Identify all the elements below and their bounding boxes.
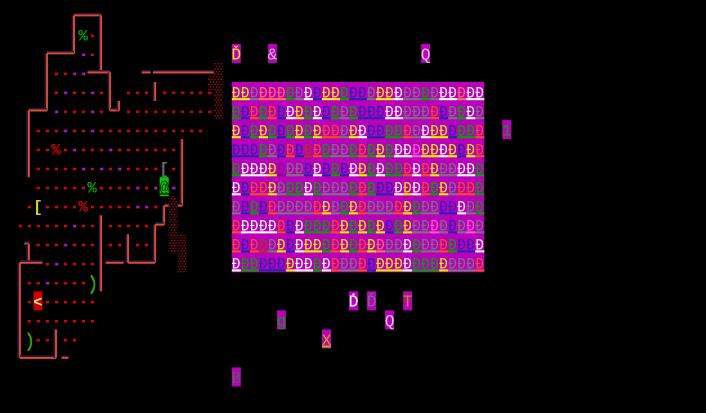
svg-text:Đ: Đ bbox=[376, 123, 385, 141]
svg-text:Đ: Đ bbox=[349, 84, 358, 102]
svg-text:Đ: Đ bbox=[466, 180, 475, 198]
svg-text:Đ: Đ bbox=[250, 103, 259, 121]
svg-text:Đ: Đ bbox=[277, 103, 286, 121]
svg-text:Đ: Đ bbox=[277, 199, 286, 217]
svg-text:Đ: Đ bbox=[466, 103, 475, 121]
svg-text:Đ: Đ bbox=[358, 256, 367, 274]
svg-text:Đ: Đ bbox=[304, 103, 313, 121]
svg-text:Đ: Đ bbox=[430, 237, 439, 255]
svg-text:Đ: Đ bbox=[412, 84, 421, 102]
svg-text:Đ: Đ bbox=[475, 256, 484, 274]
svg-text:Đ: Đ bbox=[439, 180, 448, 198]
svg-text:Đ: Đ bbox=[340, 237, 349, 255]
svg-text:T: T bbox=[403, 293, 413, 312]
svg-text:Đ: Đ bbox=[457, 103, 466, 121]
svg-text:Đ: Đ bbox=[475, 103, 484, 121]
svg-text:Đ: Đ bbox=[466, 199, 475, 217]
svg-text:Đ: Đ bbox=[232, 199, 241, 217]
svg-text:Đ: Đ bbox=[385, 103, 394, 121]
svg-text:Đ: Đ bbox=[358, 161, 367, 179]
svg-text:Đ: Đ bbox=[250, 218, 259, 236]
svg-text:Đ: Đ bbox=[475, 199, 484, 217]
svg-text:Đ: Đ bbox=[349, 103, 358, 121]
svg-text:Đ: Đ bbox=[340, 256, 349, 274]
svg-text:Đ: Đ bbox=[421, 237, 430, 255]
svg-text:Đ: Đ bbox=[259, 180, 268, 198]
svg-text:Đ: Đ bbox=[331, 161, 340, 179]
svg-text:Đ: Đ bbox=[403, 237, 412, 255]
svg-text:Đ: Đ bbox=[376, 161, 385, 179]
svg-text:Đ: Đ bbox=[295, 103, 304, 121]
svg-text:Đ: Đ bbox=[241, 123, 250, 141]
svg-text:Đ: Đ bbox=[340, 123, 349, 141]
svg-text:Đ: Đ bbox=[295, 237, 304, 255]
svg-text:Đ: Đ bbox=[421, 103, 430, 121]
svg-text:Đ: Đ bbox=[457, 123, 466, 141]
svg-text:Đ: Đ bbox=[268, 180, 277, 198]
svg-text:Đ: Đ bbox=[250, 237, 259, 255]
svg-text:Đ: Đ bbox=[313, 103, 322, 121]
svg-text:Đ: Đ bbox=[322, 84, 331, 102]
svg-text:Đ: Đ bbox=[304, 123, 313, 141]
svg-text:Đ: Đ bbox=[430, 180, 439, 198]
svg-text:): ) bbox=[87, 275, 98, 296]
svg-text:Đ: Đ bbox=[430, 199, 439, 217]
svg-text:Đ: Đ bbox=[232, 103, 241, 121]
svg-text:Đ: Đ bbox=[421, 218, 430, 236]
svg-text:Đ: Đ bbox=[457, 180, 466, 198]
svg-text:Đ: Đ bbox=[448, 218, 457, 236]
svg-text:Đ: Đ bbox=[394, 161, 403, 179]
svg-text:Đ: Đ bbox=[385, 218, 394, 236]
svg-text:Đ: Đ bbox=[358, 142, 367, 160]
svg-text:Đ: Đ bbox=[331, 84, 340, 102]
svg-text:Đ: Đ bbox=[394, 218, 403, 236]
svg-text:Đ: Đ bbox=[304, 161, 313, 179]
svg-text:Đ: Đ bbox=[385, 180, 394, 198]
svg-text:Đ: Đ bbox=[394, 180, 403, 198]
svg-text:Đ: Đ bbox=[250, 180, 259, 198]
svg-text:Đ: Đ bbox=[376, 142, 385, 160]
svg-text:Đ: Đ bbox=[367, 161, 376, 179]
svg-text:Đ: Đ bbox=[475, 84, 484, 102]
svg-text:g: g bbox=[276, 312, 286, 331]
svg-text:Đ: Đ bbox=[268, 103, 277, 121]
svg-text:Đ: Đ bbox=[394, 256, 403, 274]
svg-text:Đ: Đ bbox=[322, 180, 331, 198]
svg-text:B: B bbox=[231, 369, 241, 388]
svg-text:Đ: Đ bbox=[412, 103, 421, 121]
svg-text:Đ: Đ bbox=[304, 256, 313, 274]
svg-text:Đ: Đ bbox=[286, 142, 295, 160]
svg-text:Đ: Đ bbox=[241, 142, 250, 160]
svg-text:Đ: Đ bbox=[331, 180, 340, 198]
svg-text:Đ: Đ bbox=[448, 161, 457, 179]
svg-text:Đ: Đ bbox=[241, 103, 250, 121]
svg-text:Đ: Đ bbox=[322, 123, 331, 141]
svg-text:Đ: Đ bbox=[286, 123, 295, 141]
svg-text:Đ: Đ bbox=[331, 256, 340, 274]
svg-text:Đ: Đ bbox=[403, 103, 412, 121]
svg-text:Đ: Đ bbox=[475, 180, 484, 198]
svg-text:Đ: Đ bbox=[241, 84, 250, 102]
svg-text:@: @ bbox=[160, 179, 169, 197]
svg-text:Đ: Đ bbox=[268, 218, 277, 236]
svg-text:Đ: Đ bbox=[250, 256, 259, 274]
svg-text:Đ: Đ bbox=[232, 180, 241, 198]
svg-text:Đ: Đ bbox=[412, 199, 421, 217]
svg-text:Đ: Đ bbox=[277, 256, 286, 274]
svg-text:Đ: Đ bbox=[385, 237, 394, 255]
svg-text:Đ: Đ bbox=[241, 218, 250, 236]
svg-text:[: [ bbox=[33, 199, 43, 217]
svg-text:Đ: Đ bbox=[241, 180, 250, 198]
svg-text:Đ: Đ bbox=[295, 84, 304, 102]
svg-text:Đ: Đ bbox=[331, 103, 340, 121]
svg-text:Đ: Đ bbox=[322, 103, 331, 121]
svg-text:Đ: Đ bbox=[268, 123, 277, 141]
svg-text:Đ: Đ bbox=[322, 256, 331, 274]
svg-text:Đ: Đ bbox=[430, 123, 439, 141]
svg-text:Đ: Đ bbox=[322, 237, 331, 255]
svg-text:Đ: Đ bbox=[385, 161, 394, 179]
svg-text:Đ: Đ bbox=[349, 218, 358, 236]
svg-text:Đ: Đ bbox=[331, 218, 340, 236]
svg-text:Đ: Đ bbox=[394, 237, 403, 255]
svg-text:Đ: Đ bbox=[268, 256, 277, 274]
svg-text:Đ: Đ bbox=[322, 142, 331, 160]
svg-text:Đ: Đ bbox=[349, 142, 358, 160]
svg-text:Đ: Đ bbox=[313, 237, 322, 255]
svg-text:Đ: Đ bbox=[376, 237, 385, 255]
svg-text:Đ: Đ bbox=[457, 142, 466, 160]
svg-text:Đ: Đ bbox=[259, 142, 268, 160]
svg-text:Đ: Đ bbox=[439, 142, 448, 160]
svg-text:Đ: Đ bbox=[466, 237, 475, 255]
svg-text:Đ: Đ bbox=[259, 123, 268, 141]
svg-text:Đ: Đ bbox=[259, 218, 268, 236]
svg-text:Đ: Đ bbox=[232, 218, 241, 236]
svg-text:Đ: Đ bbox=[475, 123, 484, 141]
svg-text:Đ: Đ bbox=[367, 199, 376, 217]
svg-text:Đ: Đ bbox=[304, 199, 313, 217]
svg-text:Đ: Đ bbox=[313, 256, 322, 274]
svg-text:Đ: Đ bbox=[331, 199, 340, 217]
svg-text:D: D bbox=[349, 293, 359, 312]
svg-text:Đ: Đ bbox=[466, 256, 475, 274]
svg-text:Đ: Đ bbox=[403, 256, 412, 274]
svg-text:Đ: Đ bbox=[412, 218, 421, 236]
svg-text:Đ: Đ bbox=[439, 161, 448, 179]
svg-text:Đ: Đ bbox=[439, 218, 448, 236]
svg-text:Đ: Đ bbox=[412, 142, 421, 160]
svg-text:Đ: Đ bbox=[466, 84, 475, 102]
svg-text:Đ: Đ bbox=[403, 180, 412, 198]
svg-text:Đ: Đ bbox=[322, 161, 331, 179]
svg-text:Đ: Đ bbox=[331, 237, 340, 255]
svg-text:Q: Q bbox=[421, 45, 431, 64]
svg-text:Đ: Đ bbox=[412, 123, 421, 141]
svg-text:Đ: Đ bbox=[394, 84, 403, 102]
svg-text:Đ: Đ bbox=[475, 142, 484, 160]
svg-text:Đ: Đ bbox=[250, 199, 259, 217]
svg-text:Đ: Đ bbox=[457, 161, 466, 179]
svg-text:Đ: Đ bbox=[403, 84, 412, 102]
svg-text:Đ: Đ bbox=[457, 237, 466, 255]
svg-text:Đ: Đ bbox=[394, 142, 403, 160]
svg-text:Đ: Đ bbox=[286, 103, 295, 121]
svg-text:Đ: Đ bbox=[358, 123, 367, 141]
svg-text:Đ: Đ bbox=[268, 161, 277, 179]
svg-text:Đ: Đ bbox=[367, 237, 376, 255]
svg-text:Đ: Đ bbox=[475, 161, 484, 179]
svg-text:Đ: Đ bbox=[304, 180, 313, 198]
svg-text:Đ: Đ bbox=[421, 256, 430, 274]
svg-text:Đ: Đ bbox=[439, 199, 448, 217]
svg-text:&: & bbox=[268, 45, 278, 64]
svg-text:Đ: Đ bbox=[304, 84, 313, 102]
svg-text:Đ: Đ bbox=[412, 237, 421, 255]
svg-text:Đ: Đ bbox=[457, 199, 466, 217]
svg-text:Đ: Đ bbox=[376, 218, 385, 236]
svg-text:Đ: Đ bbox=[232, 237, 241, 255]
svg-text:%: % bbox=[51, 142, 61, 160]
svg-text:Đ: Đ bbox=[232, 123, 241, 141]
svg-text:Đ: Đ bbox=[376, 256, 385, 274]
svg-text:Đ: Đ bbox=[340, 218, 349, 236]
svg-text:Đ: Đ bbox=[286, 218, 295, 236]
svg-text:Đ: Đ bbox=[313, 161, 322, 179]
svg-text:Đ: Đ bbox=[304, 218, 313, 236]
svg-text:Đ: Đ bbox=[421, 84, 430, 102]
svg-text:Đ: Đ bbox=[466, 218, 475, 236]
svg-text:Đ: Đ bbox=[403, 199, 412, 217]
svg-text:Đ: Đ bbox=[403, 218, 412, 236]
svg-text:Q: Q bbox=[385, 312, 395, 331]
svg-text:Đ: Đ bbox=[340, 180, 349, 198]
svg-text:Đ: Đ bbox=[421, 180, 430, 198]
svg-text:Đ: Đ bbox=[286, 199, 295, 217]
svg-text:Đ: Đ bbox=[448, 84, 457, 102]
svg-text:Đ: Đ bbox=[313, 123, 322, 141]
svg-text:Đ: Đ bbox=[403, 123, 412, 141]
svg-text:Đ: Đ bbox=[394, 123, 403, 141]
svg-text:Đ: Đ bbox=[241, 161, 250, 179]
svg-text:Đ: Đ bbox=[358, 103, 367, 121]
svg-text:Đ: Đ bbox=[313, 218, 322, 236]
svg-text:Đ: Đ bbox=[448, 199, 457, 217]
svg-text:Đ: Đ bbox=[331, 142, 340, 160]
svg-text:Đ: Đ bbox=[367, 123, 376, 141]
svg-text:Đ: Đ bbox=[277, 237, 286, 255]
svg-text:Đ: Đ bbox=[439, 237, 448, 255]
svg-text:Đ: Đ bbox=[376, 103, 385, 121]
svg-text:Đ: Đ bbox=[286, 84, 295, 102]
svg-text:Đ: Đ bbox=[358, 199, 367, 217]
svg-text:Đ: Đ bbox=[349, 237, 358, 255]
svg-text:Ď: Ď bbox=[367, 293, 377, 312]
svg-text:Đ: Đ bbox=[412, 256, 421, 274]
svg-text:Đ: Đ bbox=[367, 84, 376, 102]
svg-text:Đ: Đ bbox=[421, 199, 430, 217]
svg-text:Đ: Đ bbox=[268, 142, 277, 160]
svg-text:Đ: Đ bbox=[358, 237, 367, 255]
svg-text:Đ: Đ bbox=[286, 237, 295, 255]
svg-text:Đ: Đ bbox=[367, 103, 376, 121]
svg-text:Đ: Đ bbox=[313, 199, 322, 217]
svg-text:Đ: Đ bbox=[340, 142, 349, 160]
svg-text:Đ: Đ bbox=[241, 199, 250, 217]
svg-text:<: < bbox=[33, 295, 42, 312]
svg-text:Đ: Đ bbox=[412, 180, 421, 198]
svg-text:Đ: Đ bbox=[340, 84, 349, 102]
svg-text:Đ: Đ bbox=[313, 142, 322, 160]
svg-text:Đ: Đ bbox=[430, 218, 439, 236]
svg-text:Đ: Đ bbox=[349, 161, 358, 179]
svg-text:Đ: Đ bbox=[457, 218, 466, 236]
svg-text:Đ: Đ bbox=[475, 237, 484, 255]
svg-text:Đ: Đ bbox=[349, 123, 358, 141]
svg-text:Đ: Đ bbox=[268, 199, 277, 217]
svg-text:Đ: Đ bbox=[313, 84, 322, 102]
svg-text:Đ: Đ bbox=[322, 218, 331, 236]
svg-text:Đ: Đ bbox=[268, 84, 277, 102]
svg-text:Đ: Đ bbox=[358, 84, 367, 102]
svg-text:Đ: Đ bbox=[241, 237, 250, 255]
svg-text:Đ: Đ bbox=[259, 103, 268, 121]
svg-text:Đ: Đ bbox=[268, 237, 277, 255]
svg-text:Đ: Đ bbox=[430, 103, 439, 121]
svg-text:1: 1 bbox=[502, 122, 512, 141]
svg-text:Đ: Đ bbox=[403, 161, 412, 179]
svg-text:Đ: Đ bbox=[466, 123, 475, 141]
svg-text:Đ: Đ bbox=[430, 256, 439, 274]
svg-text:X: X bbox=[322, 332, 332, 350]
svg-text:Đ: Đ bbox=[304, 237, 313, 255]
svg-text:Đ: Đ bbox=[421, 123, 430, 141]
svg-text:Đ: Đ bbox=[295, 256, 304, 274]
svg-text:Đ: Đ bbox=[259, 161, 268, 179]
svg-text:Đ: Đ bbox=[448, 103, 457, 121]
svg-text:Đ: Đ bbox=[313, 180, 322, 198]
svg-text:%: % bbox=[87, 180, 97, 198]
svg-text:Đ: Đ bbox=[385, 256, 394, 274]
svg-text:Đ: Đ bbox=[448, 142, 457, 160]
svg-text:Đ: Đ bbox=[367, 218, 376, 236]
svg-text:Đ: Đ bbox=[358, 218, 367, 236]
svg-text:Đ: Đ bbox=[367, 180, 376, 198]
svg-text:Đ: Đ bbox=[277, 142, 286, 160]
svg-text:Đ: Đ bbox=[439, 123, 448, 141]
svg-text:Đ: Đ bbox=[430, 84, 439, 102]
svg-text:): ) bbox=[24, 332, 35, 353]
svg-text:Đ: Đ bbox=[385, 123, 394, 141]
svg-text:Đ: Đ bbox=[421, 161, 430, 179]
svg-text:Đ: Đ bbox=[430, 161, 439, 179]
svg-text:Đ: Đ bbox=[376, 199, 385, 217]
svg-text:Đ: Đ bbox=[367, 142, 376, 160]
svg-text:Đ: Đ bbox=[250, 84, 259, 102]
svg-text:Đ: Đ bbox=[295, 218, 304, 236]
svg-text:Đ: Đ bbox=[304, 142, 313, 160]
svg-text:Đ: Đ bbox=[250, 161, 259, 179]
svg-text:Đ: Đ bbox=[322, 199, 331, 217]
svg-text:%: % bbox=[78, 27, 88, 45]
svg-text:Đ: Đ bbox=[259, 237, 268, 255]
svg-text:Đ: Đ bbox=[349, 256, 358, 274]
svg-text:Đ: Đ bbox=[448, 180, 457, 198]
svg-text:Đ: Đ bbox=[295, 142, 304, 160]
svg-text:Đ: Đ bbox=[349, 199, 358, 217]
svg-text:Đ: Đ bbox=[277, 218, 286, 236]
svg-text:Đ: Đ bbox=[349, 180, 358, 198]
svg-text:Đ: Đ bbox=[439, 84, 448, 102]
svg-text:Đ: Đ bbox=[385, 142, 394, 160]
svg-text:Đ: Đ bbox=[259, 84, 268, 102]
svg-text:Đ: Đ bbox=[277, 84, 286, 102]
svg-text:Đ: Đ bbox=[232, 142, 241, 160]
svg-text:Đ: Đ bbox=[376, 84, 385, 102]
svg-text:Đ: Đ bbox=[466, 161, 475, 179]
svg-text:Đ: Đ bbox=[286, 180, 295, 198]
svg-text:Đ: Đ bbox=[448, 256, 457, 274]
svg-text:Đ: Đ bbox=[250, 142, 259, 160]
svg-text:Đ: Đ bbox=[232, 161, 241, 179]
svg-text:Đ: Đ bbox=[277, 161, 286, 179]
svg-text:Đ: Đ bbox=[295, 180, 304, 198]
svg-text:Đ: Đ bbox=[376, 180, 385, 198]
svg-text:Đ: Đ bbox=[403, 142, 412, 160]
svg-text:Đ: Đ bbox=[385, 199, 394, 217]
svg-text:Đ: Đ bbox=[241, 256, 250, 274]
svg-text:Đ: Đ bbox=[421, 142, 430, 160]
svg-text:Đ: Đ bbox=[340, 161, 349, 179]
svg-text:[: [ bbox=[159, 161, 169, 179]
svg-text:Đ: Đ bbox=[457, 84, 466, 102]
svg-text:Đ: Đ bbox=[232, 256, 241, 274]
svg-text:Đ: Đ bbox=[358, 180, 367, 198]
svg-text:Đ: Đ bbox=[439, 256, 448, 274]
svg-text:Đ: Đ bbox=[475, 218, 484, 236]
svg-text:Đ: Đ bbox=[439, 103, 448, 121]
svg-text:Đ: Đ bbox=[448, 237, 457, 255]
svg-text:Đ: Đ bbox=[286, 256, 295, 274]
svg-text:Đ: Đ bbox=[394, 199, 403, 217]
svg-text:Đ: Đ bbox=[259, 199, 268, 217]
svg-text:Đ: Đ bbox=[331, 123, 340, 141]
svg-text:Đ: Đ bbox=[259, 256, 268, 274]
svg-text:%: % bbox=[78, 199, 88, 217]
svg-text:Đ: Đ bbox=[448, 123, 457, 141]
svg-text:Đ: Đ bbox=[295, 161, 304, 179]
svg-text:Đ: Đ bbox=[385, 84, 394, 102]
svg-text:Ď: Ď bbox=[231, 45, 241, 64]
svg-text:Đ: Đ bbox=[340, 103, 349, 121]
svg-text:Đ: Đ bbox=[430, 142, 439, 160]
svg-text:Đ: Đ bbox=[295, 199, 304, 217]
svg-text:Đ: Đ bbox=[286, 161, 295, 179]
svg-text:Đ: Đ bbox=[232, 84, 241, 102]
svg-text:Đ: Đ bbox=[412, 161, 421, 179]
svg-text:Đ: Đ bbox=[295, 123, 304, 141]
svg-text:Đ: Đ bbox=[340, 199, 349, 217]
svg-text:Đ: Đ bbox=[277, 180, 286, 198]
svg-text:Đ: Đ bbox=[367, 256, 376, 274]
svg-text:Đ: Đ bbox=[466, 142, 475, 160]
svg-text:Đ: Đ bbox=[250, 123, 259, 141]
svg-text:Đ: Đ bbox=[457, 256, 466, 274]
svg-text:Đ: Đ bbox=[394, 103, 403, 121]
